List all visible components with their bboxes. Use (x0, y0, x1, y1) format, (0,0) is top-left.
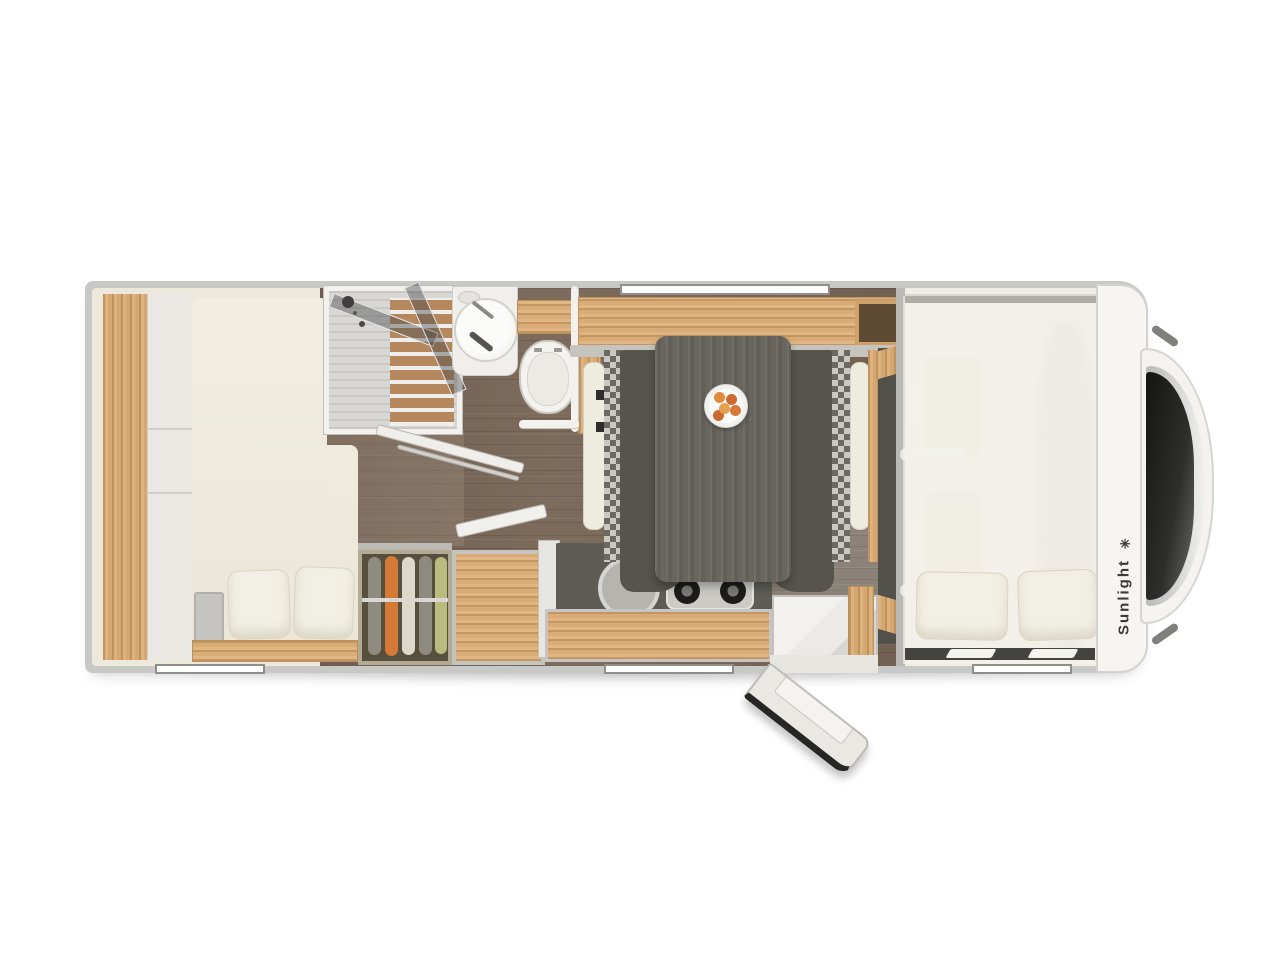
rear-wardrobe-panel (103, 294, 147, 660)
fruit-icon (714, 392, 725, 403)
storage-cabinet (452, 550, 545, 665)
a-pillar-mark-top (1150, 324, 1179, 348)
window-top-dinette (620, 284, 830, 295)
brand-name-label: Sunlight (1116, 559, 1133, 635)
cab-door-handle (1027, 649, 1078, 658)
window-bottom-cab (972, 664, 1072, 674)
entry-side-wood-wall (848, 586, 874, 664)
cloth-hanging (435, 557, 447, 654)
bed-foot-board (192, 640, 358, 662)
bed-pillow-left (227, 569, 291, 640)
washbasin-bowl (454, 298, 518, 362)
toilet-hinges (534, 348, 542, 352)
cloth-hanging (385, 556, 398, 656)
dinette-table (655, 336, 791, 582)
cab-door-handle (945, 649, 996, 658)
toilet-seat (527, 352, 569, 406)
overcab-pillow-left (915, 571, 1008, 641)
dinette-armrest-right (850, 362, 870, 530)
window-bottom-kitchen (604, 664, 734, 674)
bed-pillow-right (293, 566, 355, 640)
brand-logo: Sunlight ✳ (1108, 425, 1140, 635)
overcab-pillow-right (1017, 569, 1099, 642)
rear-cabinet-divider (147, 492, 192, 494)
dinette-armrest-left (583, 362, 605, 530)
toilet-partition-wall-horizontal (519, 420, 579, 429)
a-pillar-mark-bottom (1150, 622, 1179, 646)
kitchen-front-panel (545, 609, 772, 662)
sun-logo-icon: ✳ (1117, 533, 1132, 550)
rear-cabinet-divider (147, 428, 192, 430)
entry-door-opening (770, 655, 878, 673)
fruit-plate (704, 384, 748, 428)
dinette-backrest-right (832, 350, 850, 562)
cloth-hanging (419, 556, 432, 655)
floorplan-motorhome-top-view: Sunlight ✳ (0, 0, 1280, 960)
rear-cabinet-column (147, 294, 192, 660)
wardrobe-rail (362, 598, 448, 602)
cloth-hanging (368, 557, 381, 655)
shower-head-icon (342, 296, 354, 308)
cloth-hanging (402, 557, 415, 655)
window-bottom-bed (155, 664, 265, 674)
